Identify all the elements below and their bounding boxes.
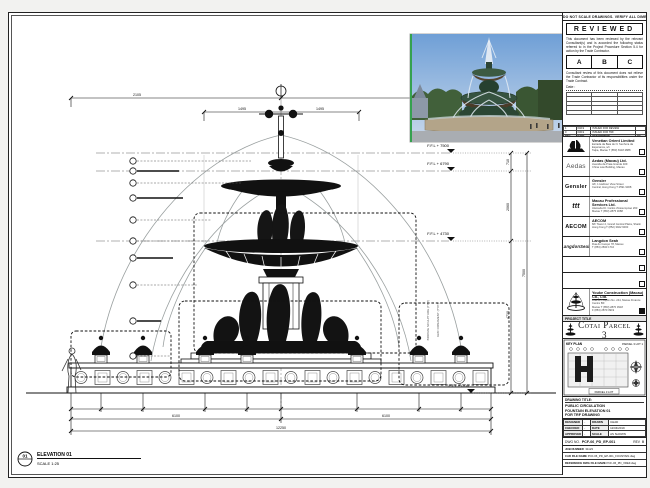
drawing-title-block: DRAWING TITLE: PUBLIC CIRCULATION FOUNTA…	[563, 397, 646, 419]
svg-text:F.F.L ± 0.00: F.F.L ± 0.00	[448, 383, 469, 388]
checkbox[interactable]	[639, 149, 645, 155]
status-c[interactable]: C	[618, 56, 642, 68]
svg-text:KEY PLAN: KEY PLAN	[566, 342, 583, 346]
status-boxes: A B C	[566, 55, 643, 69]
material-notes: BRONZE SCULPTURE (TYP.) GRC ORNAMENT (TY…	[426, 300, 440, 341]
upper-basin	[221, 159, 341, 210]
svg-text:4730: 4730	[506, 311, 510, 319]
consultant-row-aedas: Aedas Aedas (Macau) Ltd. Avenida da Prai…	[563, 157, 646, 177]
reference-file-row: REFERENCE DWG FILE NAME PCF-06_PD_XREF.d…	[563, 460, 646, 467]
review-stamp: REVIEWED This document has been reviewed…	[563, 21, 646, 126]
checkbox[interactable]	[639, 265, 645, 271]
reviewed-title: REVIEWED	[566, 23, 643, 35]
svg-text:F.F.L + 4730: F.F.L + 4730	[427, 231, 450, 236]
fountain-photo-image	[412, 34, 567, 142]
project-name: Cotai Parcel 3	[576, 322, 633, 339]
contractor-fountain-logo	[563, 289, 590, 315]
checkbox[interactable]	[639, 229, 645, 235]
consultant-row-venetian: Venetian Orient Limited Estrada da Baia …	[563, 137, 646, 157]
langdon-seah-logo: LangdonSeah	[563, 237, 590, 256]
gensler-logo: Gensler	[563, 177, 590, 196]
fountain-reference-photo	[410, 34, 569, 142]
key-plan: KEY PLAN PARCEL 3 LOT 1	[563, 339, 646, 397]
cad-file-row: CAD FILE NAME PCF-06_PD_EP-001_FOUNTAIN.…	[563, 453, 646, 460]
svg-text:2060: 2060	[506, 203, 510, 211]
svg-text:SCALE 1:25: SCALE 1:25	[37, 461, 60, 466]
svg-text:6100: 6100	[172, 414, 180, 418]
checkbox[interactable]	[639, 169, 645, 175]
svg-text:BRONZE SCULPTURE (TYP.): BRONZE SCULPTURE (TYP.)	[426, 300, 430, 341]
venetian-orient-logo	[563, 137, 590, 156]
disclaimer-strip: DO NOT SCALE DRAWINGS. VERIFY ALL DIMENS…	[563, 13, 646, 21]
datum-bubble	[276, 84, 286, 98]
key-plan-podium	[568, 353, 628, 387]
panel-filler	[563, 467, 646, 475]
revision-table: 104/19 ISSUED FOR REVIEW 003/19 ISSUED F…	[563, 126, 646, 137]
stamp-paragraph-1: This document has been reviewed by the r…	[566, 37, 643, 53]
drawing-sheet: F.F.L + 7500 F.F.L + 6790 F.F.L + 4730 F…	[8, 12, 647, 478]
consultant-row-langdonseah: LangdonSeah Langdon Seah Rua do Campo 78…	[563, 237, 646, 257]
svg-text:F.F.L + 6790: F.F.L + 6790	[427, 161, 450, 166]
consultant-row-mps: ttt Macau Professional Services Ltd. Ala…	[563, 197, 646, 217]
tier-basin	[204, 239, 358, 281]
dwg-number: PCF-06_PD_EP-001	[582, 440, 615, 444]
svg-text:01: 01	[22, 454, 28, 459]
aedas-logo: Aedas	[563, 157, 590, 176]
svg-text:2105: 2105	[133, 93, 141, 97]
dwg-rev: 0	[642, 440, 644, 444]
consultant-row-gensler: Gensler Gensler 4/F, 1 Harbour View Stre…	[563, 177, 646, 197]
stamp-sign-table	[566, 92, 643, 115]
svg-text:PARCEL 3 LOT: PARCEL 3 LOT	[595, 390, 614, 394]
svg-text:12250: 12250	[276, 426, 286, 430]
project-banner: Cotai Parcel 3	[563, 322, 646, 339]
stamp-paragraph-2: Consultant review of this document does …	[566, 71, 643, 83]
middle-statues	[257, 204, 305, 244]
empty-consultant-row	[563, 273, 646, 289]
svg-text:F.F.L + 7500: F.F.L + 7500	[427, 143, 450, 148]
svg-text:GRC ORNAMENT (TYP.): GRC ORNAMENT (TYP.)	[436, 303, 440, 337]
status-b[interactable]: B	[592, 56, 617, 68]
svg-text:710: 710	[506, 159, 510, 165]
checkbox[interactable]	[639, 249, 645, 255]
view-title: 01 ELEVATION 01 SCALE 1:25	[18, 452, 141, 466]
banner-fountain-icon-left	[565, 323, 576, 337]
svg-text:6100: 6100	[382, 414, 390, 418]
aecom-logo: AECOM	[563, 217, 590, 236]
photo-pavement	[412, 131, 567, 142]
consultant-row-aecom: AECOM AECOM 8/F Tower 2, Grand Central P…	[563, 217, 646, 237]
mps-logo: ttt	[563, 197, 590, 216]
checkbox[interactable]	[639, 189, 645, 195]
checkbox[interactable]	[639, 209, 645, 215]
stamp-date-line[interactable]: Date :	[566, 85, 643, 91]
job-number-row: JOB NUMBER 31123	[563, 446, 646, 453]
lower-statues	[213, 277, 348, 346]
dwg-number-row: DWG NO. PCF-06_PD_EP-001 REV 0	[563, 438, 646, 446]
empty-consultant-row	[563, 257, 646, 273]
svg-text:ELEVATION 01: ELEVATION 01	[37, 452, 72, 458]
title-block-panel: DO NOT SCALE DRAWINGS. VERIFY ALL DIMENS…	[562, 13, 646, 475]
filled-checkbox	[639, 308, 645, 314]
basin-wall	[67, 363, 495, 393]
banner-fountain-icon-right	[633, 323, 644, 337]
svg-text:1495: 1495	[316, 107, 324, 111]
drawing-title-label: DRAWING TITLE:	[565, 398, 644, 403]
svg-text:7500: 7500	[522, 269, 526, 277]
svg-text:PARCEL 3 LOT 1: PARCEL 3 LOT 1	[622, 342, 643, 346]
contractor-block: Youke Construction (Macau) Co., Ltd. Rua…	[563, 289, 646, 316]
svg-text:1495: 1495	[238, 107, 246, 111]
checkbox[interactable]	[639, 281, 645, 287]
status-a[interactable]: A	[567, 56, 592, 68]
signature-fields: DESIGNED- DRAWNCHAD CHECKED- DATE12/04/2…	[563, 419, 646, 438]
